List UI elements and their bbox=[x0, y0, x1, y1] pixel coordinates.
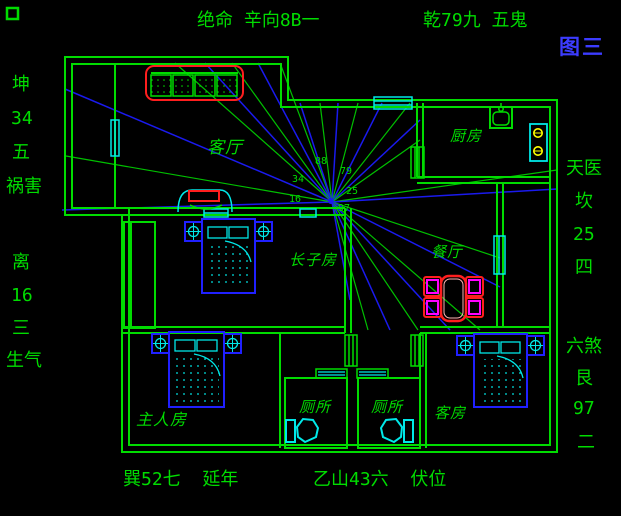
left-number-16: 16 bbox=[11, 287, 33, 305]
top-direction-label: 绝命 辛向8B一 bbox=[197, 12, 320, 30]
bed-guest bbox=[457, 334, 544, 407]
kitchen-sink bbox=[490, 103, 512, 128]
room-label-toilet-2: 厕所 bbox=[371, 400, 403, 415]
direction-ray-line bbox=[332, 202, 390, 330]
room-label-toilet-1: 厕所 bbox=[299, 400, 331, 415]
right-palace-two: 二 bbox=[577, 434, 595, 452]
bathroom-window-glass bbox=[318, 372, 386, 375]
bed-eldest-son bbox=[185, 219, 272, 293]
compass-center-point bbox=[328, 198, 334, 204]
direction-ray-line bbox=[332, 103, 410, 202]
room-label-dining-room: 餐厅 bbox=[431, 245, 463, 260]
right-number-97: 97 bbox=[573, 400, 595, 418]
room-label-kitchen: 厨房 bbox=[450, 129, 482, 144]
stove bbox=[530, 124, 547, 161]
left-star-shengqi: 生气 bbox=[6, 352, 42, 370]
bathroom-2-window-frame bbox=[357, 369, 388, 378]
corner-marker-icon bbox=[7, 8, 18, 19]
right-number-25: 25 bbox=[573, 226, 595, 244]
feng-shui-floor-plan: 绝命 辛向8B一 乾79九 五鬼 图三 坤 34 五 祸害 离 16 三 生气 … bbox=[0, 0, 621, 516]
right-star-liusha: 六煞 bbox=[566, 338, 602, 356]
right-trigram-kan: 坎 bbox=[575, 193, 593, 211]
room-label-master-room: 主人房 bbox=[136, 412, 187, 428]
flower-window bbox=[146, 66, 243, 100]
top-right-direction-label: 乾79九 五鬼 bbox=[423, 12, 528, 30]
center-star-number: 79 bbox=[340, 167, 352, 177]
left-number-34: 34 bbox=[11, 110, 33, 128]
right-star-tianyi: 天医 bbox=[566, 160, 602, 178]
left-trigram-li: 离 bbox=[12, 254, 30, 272]
left-star-huohai: 祸害 bbox=[6, 178, 42, 196]
room-label-eldest-son: 长子房 bbox=[289, 253, 337, 268]
center-star-number: 25 bbox=[346, 187, 358, 197]
center-star-number: 97 bbox=[338, 204, 350, 214]
center-star-number: 88 bbox=[315, 157, 327, 167]
bed-master bbox=[152, 332, 241, 407]
right-palace-four: 四 bbox=[575, 259, 593, 277]
room-label-guest-room: 客房 bbox=[434, 406, 466, 421]
bottom-right-direction-label: 乙山43六 伏位 bbox=[313, 471, 446, 489]
bottom-left-direction-label: 巽52七 延年 bbox=[123, 471, 238, 489]
center-star-number: 16 bbox=[289, 195, 301, 205]
left-palace-three: 三 bbox=[12, 320, 30, 338]
toilet-2 bbox=[381, 419, 413, 442]
dining-set bbox=[424, 276, 483, 321]
direction-ray-line bbox=[332, 103, 338, 202]
bathroom-1-window-frame bbox=[316, 369, 347, 378]
left-trigram-kun: 坤 bbox=[12, 76, 30, 94]
direction-ray-line bbox=[332, 170, 557, 202]
figure-number-label: 图三 bbox=[559, 37, 605, 58]
direction-ray-line bbox=[332, 189, 557, 202]
room-label-living-room: 客厅 bbox=[207, 140, 243, 157]
right-trigram-gen: 艮 bbox=[575, 370, 593, 388]
center-star-number: 34 bbox=[292, 175, 304, 185]
left-palace-five: 五 bbox=[12, 144, 30, 162]
toilet-1 bbox=[286, 419, 318, 442]
